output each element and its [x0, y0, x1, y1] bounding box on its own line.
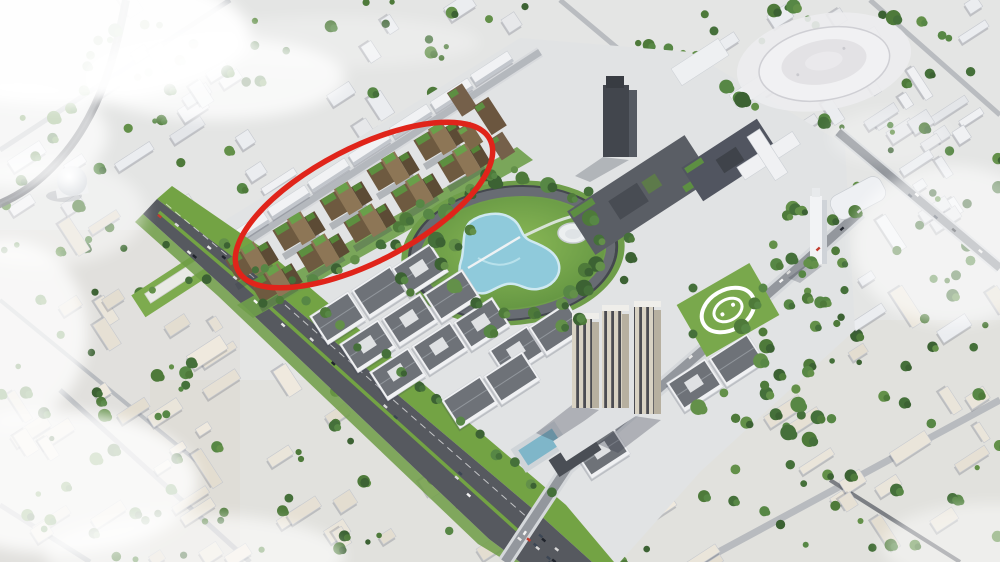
tree [689, 284, 698, 293]
tree [630, 256, 637, 263]
tree [635, 40, 641, 46]
tree [930, 72, 936, 78]
tree [842, 261, 848, 267]
tree [775, 412, 782, 419]
tree [258, 299, 267, 308]
tree [296, 449, 302, 455]
tree [491, 173, 497, 179]
tree [751, 103, 759, 111]
tree [800, 480, 807, 487]
tree [373, 91, 380, 98]
tree [776, 262, 784, 270]
tree [365, 539, 370, 544]
tree [595, 262, 605, 272]
tree [599, 238, 606, 245]
tree [766, 391, 774, 399]
tree [276, 296, 284, 304]
tree [850, 474, 858, 482]
tree [856, 360, 862, 366]
tree [347, 438, 354, 445]
tree [798, 270, 806, 278]
tree [868, 544, 876, 552]
tree [401, 276, 409, 284]
city-masterplan-render: Bird's-eye architectural rendering of an… [0, 0, 1000, 562]
tree [831, 246, 840, 255]
tree [789, 303, 796, 310]
tree [978, 392, 986, 400]
tree [791, 384, 800, 393]
tree [807, 370, 814, 377]
tree [436, 397, 442, 403]
tree [760, 358, 769, 367]
tree [932, 345, 939, 352]
tree [380, 243, 386, 249]
tree [815, 325, 822, 332]
tree [88, 349, 95, 356]
dark-highrise-cap [606, 76, 624, 88]
tree [811, 261, 819, 269]
tree [455, 243, 463, 251]
tree [530, 483, 536, 489]
tree [701, 10, 709, 18]
tree [766, 344, 775, 353]
tree [298, 456, 304, 462]
tree [382, 349, 392, 359]
tree [185, 371, 193, 379]
tree [726, 84, 735, 93]
tree [802, 209, 808, 215]
tree [827, 473, 834, 480]
tree [809, 437, 818, 446]
tree [149, 287, 156, 294]
tree [216, 445, 223, 452]
tree [178, 387, 183, 392]
tree [504, 311, 511, 318]
cloud [180, 16, 480, 68]
tree [448, 197, 456, 205]
tree [162, 241, 170, 249]
tree [629, 236, 635, 242]
tree [445, 527, 453, 535]
tree [883, 395, 890, 402]
tree [155, 413, 162, 420]
tree [495, 180, 504, 189]
tree [401, 370, 407, 376]
tree [336, 267, 343, 274]
tree [485, 15, 493, 23]
tree [521, 3, 528, 10]
tree [435, 237, 445, 247]
tree [788, 430, 798, 440]
tree [353, 343, 361, 351]
tree [344, 534, 351, 541]
tree [856, 333, 864, 341]
tree [451, 11, 458, 18]
tree [760, 381, 769, 390]
tree [285, 494, 294, 503]
amphitheatre-stage [565, 229, 581, 239]
tree [224, 242, 231, 249]
tree [191, 361, 198, 368]
tree [966, 67, 975, 76]
tree [803, 259, 812, 268]
tree [710, 26, 719, 35]
tree [161, 118, 167, 124]
tree [620, 276, 629, 285]
tree [584, 187, 594, 197]
tree [496, 453, 503, 460]
tree [938, 31, 947, 40]
tree [764, 510, 770, 516]
tree [689, 330, 698, 339]
tree [786, 460, 795, 469]
tree [176, 158, 185, 167]
tree [511, 166, 518, 173]
tree [829, 358, 835, 364]
tree [837, 314, 844, 321]
tree [817, 415, 826, 424]
tree [476, 301, 483, 308]
tree [803, 542, 809, 548]
tree [547, 487, 557, 497]
tree [562, 302, 569, 309]
tree [904, 401, 911, 408]
tree [350, 255, 360, 265]
tree [101, 400, 107, 406]
cloud [830, 110, 950, 166]
tree [288, 276, 296, 284]
tree [456, 417, 465, 426]
tree [906, 82, 912, 88]
tree [969, 343, 978, 352]
tree [96, 391, 102, 397]
tree [570, 290, 579, 299]
dark-highrise-side [629, 90, 637, 157]
tree [787, 214, 793, 220]
tree [476, 430, 485, 439]
tree [893, 15, 902, 24]
tree [416, 199, 425, 208]
tree [746, 421, 754, 429]
tree [229, 149, 235, 155]
tree [773, 8, 781, 16]
tree [548, 183, 558, 193]
tree [454, 284, 463, 293]
tree [185, 277, 193, 285]
tree [510, 457, 520, 467]
tree [572, 196, 578, 202]
tree [741, 324, 751, 334]
tree [759, 284, 768, 293]
tree [470, 228, 477, 235]
tree [360, 478, 369, 487]
tree [398, 225, 405, 232]
tree [798, 402, 808, 412]
tree [927, 419, 937, 429]
tree [490, 329, 498, 337]
tree [769, 240, 778, 249]
tree [827, 414, 836, 423]
tree [282, 509, 289, 516]
tree [779, 373, 786, 380]
tree [982, 322, 988, 328]
tree [731, 465, 741, 475]
tree [858, 518, 864, 524]
tree [643, 546, 650, 553]
tree [905, 364, 912, 371]
tree [840, 286, 848, 294]
tree [921, 20, 927, 26]
tree [585, 268, 594, 277]
tree [791, 257, 798, 264]
tree [584, 285, 594, 295]
tree [252, 266, 259, 273]
tree [406, 217, 414, 225]
tree [325, 311, 332, 318]
tree [522, 176, 530, 184]
tree [335, 320, 345, 330]
tree [419, 385, 425, 391]
tree [157, 373, 165, 381]
tree [406, 288, 414, 296]
dark-highrise [603, 85, 629, 157]
tree [698, 405, 708, 415]
tree [896, 488, 904, 496]
tree [124, 124, 133, 133]
tree [742, 97, 752, 107]
tree [833, 320, 840, 327]
tree [242, 187, 249, 194]
tree [261, 264, 269, 272]
tree [162, 410, 170, 418]
tree [376, 533, 382, 539]
tree [334, 424, 341, 431]
tree [975, 465, 980, 470]
tree [441, 262, 449, 270]
tree [534, 311, 542, 319]
tree [169, 364, 174, 369]
tree [830, 501, 840, 511]
tree [577, 314, 586, 323]
tree [731, 414, 740, 423]
tower-c [634, 301, 661, 414]
tree [720, 389, 729, 398]
tree [754, 302, 761, 309]
tree [704, 494, 711, 501]
tree [733, 499, 740, 506]
tree [589, 215, 599, 225]
tower-a [572, 313, 599, 408]
tree [820, 300, 827, 307]
tree [776, 520, 785, 529]
tree [759, 328, 768, 337]
tree [823, 121, 831, 129]
tree [428, 212, 435, 219]
tower-b [602, 305, 629, 408]
tree [301, 296, 310, 305]
tree [807, 297, 814, 304]
tree [832, 218, 839, 225]
tree [793, 4, 802, 13]
tree [91, 289, 98, 296]
tree [561, 324, 569, 332]
tree [952, 497, 959, 504]
tree [202, 274, 212, 284]
